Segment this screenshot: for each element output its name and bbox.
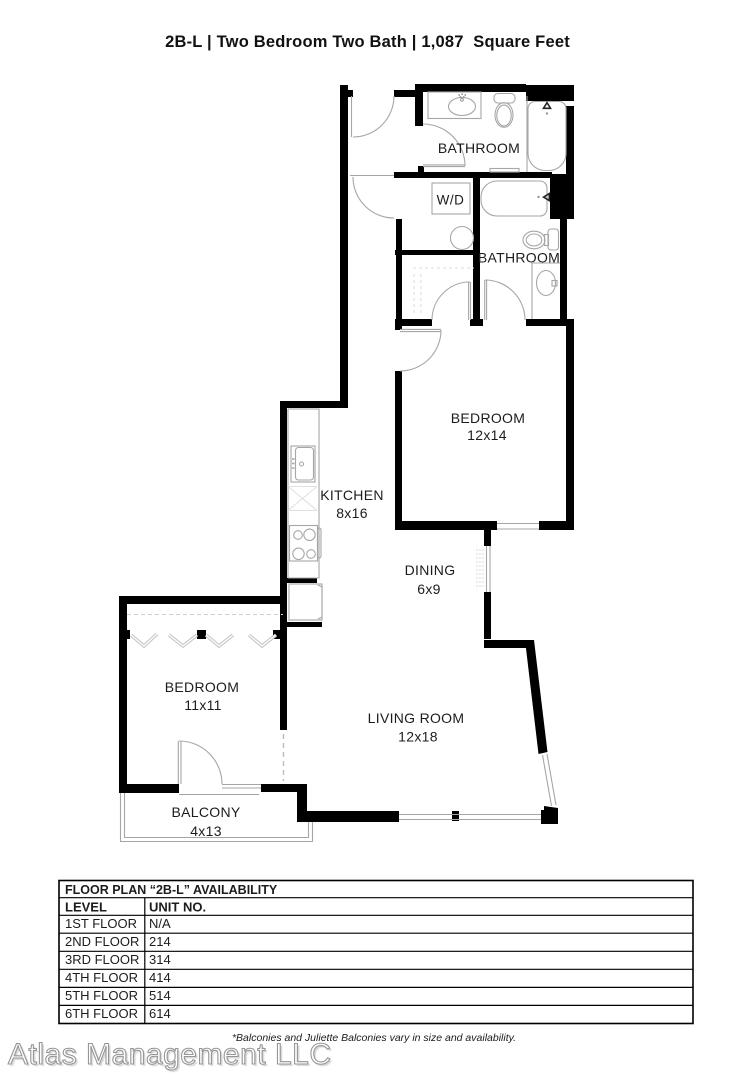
svg-text:214: 214 [149, 934, 171, 949]
svg-text:LEVEL: LEVEL [65, 899, 107, 914]
svg-text:DINING: DINING [405, 562, 456, 578]
svg-text:6x9: 6x9 [417, 581, 440, 597]
svg-text:4x13: 4x13 [190, 823, 222, 839]
svg-text:414: 414 [149, 970, 171, 985]
svg-text:2ND FLOOR: 2ND FLOOR [65, 934, 139, 949]
svg-text:11x11: 11x11 [184, 697, 222, 713]
svg-text:KITCHEN: KITCHEN [320, 487, 384, 503]
svg-text:N/A: N/A [149, 916, 171, 931]
svg-text:FLOOR PLAN “2B-L” AVAILABILITY: FLOOR PLAN “2B-L” AVAILABILITY [65, 883, 278, 897]
svg-text:4TH FLOOR: 4TH FLOOR [65, 970, 138, 985]
svg-text:BATHROOM: BATHROOM [438, 140, 520, 156]
svg-text:1ST FLOOR: 1ST FLOOR [65, 916, 137, 931]
svg-text:W/D: W/D [437, 193, 465, 208]
svg-text:514: 514 [149, 988, 171, 1003]
svg-text:BALCONY: BALCONY [171, 804, 240, 820]
svg-text:12x18: 12x18 [398, 729, 438, 745]
svg-text:614: 614 [149, 1006, 171, 1021]
svg-text:BEDROOM: BEDROOM [165, 679, 239, 695]
svg-text:3RD FLOOR: 3RD FLOOR [65, 952, 139, 967]
svg-text:BEDROOM: BEDROOM [451, 410, 525, 426]
svg-text:8x16: 8x16 [336, 505, 368, 521]
svg-text:6TH FLOOR: 6TH FLOOR [65, 1006, 138, 1021]
svg-text:5TH FLOOR: 5TH FLOOR [65, 988, 138, 1003]
svg-text:UNIT NO.: UNIT NO. [149, 899, 206, 914]
svg-text:314: 314 [149, 952, 171, 967]
svg-text:LIVING ROOM: LIVING ROOM [368, 710, 465, 726]
svg-text:12x14: 12x14 [467, 427, 507, 443]
svg-text:BATHROOM: BATHROOM [478, 250, 560, 266]
